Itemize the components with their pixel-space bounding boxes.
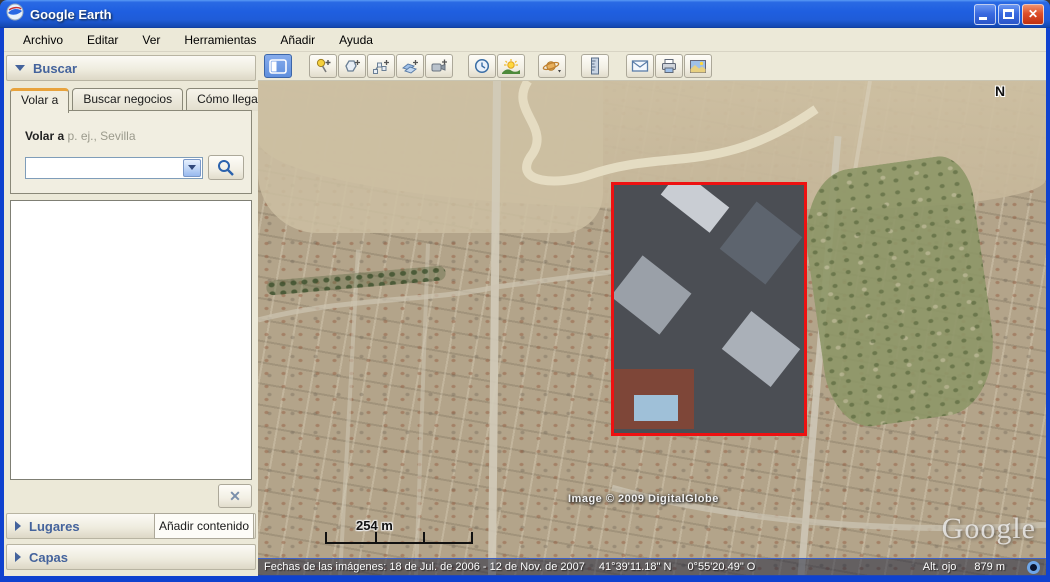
add-content-button[interactable]: Añadir contenido (154, 513, 254, 539)
minimize-button[interactable] (974, 4, 996, 25)
add-image-overlay-button[interactable] (396, 54, 424, 78)
search-input[interactable] (28, 159, 180, 177)
search-tabs: Volar a Buscar negocios Cómo llegar (10, 88, 276, 111)
eye-altitude-value: 879 m (974, 561, 1005, 573)
sunlight-button[interactable] (497, 54, 525, 78)
google-earth-window: Google Earth ✕ Archivo Editar Ver Herram… (0, 0, 1050, 582)
save-image-button[interactable] (684, 54, 712, 78)
chevron-down-icon (188, 165, 196, 170)
polygon-icon (343, 58, 361, 74)
layers-panel-header[interactable]: Capas (6, 544, 256, 570)
image-overlay-icon (401, 58, 419, 74)
historical-imagery-button[interactable] (468, 54, 496, 78)
flyto-tab-panel: Volar a p. ej., Sevilla (10, 110, 252, 194)
print-button[interactable] (655, 54, 683, 78)
search-button[interactable] (208, 155, 244, 180)
ruler-button[interactable] (581, 54, 609, 78)
flyto-hint: p. ej., Sevilla (67, 129, 135, 143)
maximize-icon (1003, 9, 1014, 19)
expand-triangle-icon (15, 552, 21, 562)
google-watermark: Google (942, 512, 1036, 546)
clear-search-button[interactable]: ✕ (218, 484, 252, 508)
menu-bar: Archivo Editar Ver Herramientas Añadir A… (4, 28, 1046, 52)
menu-ayuda[interactable]: Ayuda (328, 30, 384, 50)
menu-herramientas[interactable]: Herramientas (173, 30, 267, 50)
printer-icon (660, 58, 678, 74)
record-tour-button[interactable] (425, 54, 453, 78)
search-panel-header[interactable]: Buscar (6, 55, 256, 81)
path-icon (372, 58, 390, 74)
tab-buscar-negocios[interactable]: Buscar negocios (72, 88, 183, 111)
flyto-label: Volar a (25, 129, 64, 143)
add-path-button[interactable] (367, 54, 395, 78)
imagery-dates: Fechas de las imágenes: 18 de Jul. de 20… (264, 561, 585, 573)
scale-tick (375, 532, 377, 544)
sidebar: Buscar Volar a Buscar negocios Cómo lleg… (4, 52, 258, 576)
camcorder-icon (430, 58, 448, 74)
email-button[interactable] (626, 54, 654, 78)
placemark-icon (314, 58, 332, 74)
ruler-icon (589, 57, 601, 75)
close-icon: ✕ (1023, 7, 1043, 21)
flyto-combobox[interactable] (25, 157, 203, 179)
imagery-copyright: Image © 2009 DigitalGlobe (568, 493, 719, 505)
minimize-icon (979, 17, 987, 20)
expand-triangle-icon (15, 521, 21, 531)
saturn-icon (542, 58, 562, 74)
switch-planet-button[interactable] (538, 54, 566, 78)
tab-volar-a[interactable]: Volar a (10, 88, 69, 113)
search-panel-title: Buscar (33, 61, 77, 76)
places-panel-title: Lugares (29, 519, 80, 534)
latitude-readout: 41°39'11.18" N (599, 561, 672, 573)
toolbar (258, 52, 1046, 81)
menu-anadir[interactable]: Añadir (269, 30, 326, 50)
image-icon (689, 59, 707, 74)
window-body: Buscar Volar a Buscar negocios Cómo lleg… (4, 52, 1046, 576)
menu-ver[interactable]: Ver (131, 30, 171, 50)
add-placemark-button[interactable] (309, 54, 337, 78)
scale-bar: 254 m (320, 518, 480, 546)
menu-editar[interactable]: Editar (76, 30, 129, 50)
selection-rectangle[interactable] (611, 182, 807, 436)
layers-panel-title: Capas (29, 550, 68, 565)
close-button[interactable]: ✕ (1022, 4, 1044, 25)
scale-tick (325, 532, 327, 544)
north-indicator: N (995, 83, 1005, 99)
maximize-button[interactable] (998, 4, 1020, 25)
streaming-indicator-icon (1027, 561, 1040, 574)
toggle-sidebar-button[interactable] (264, 54, 292, 78)
window-title: Google Earth (30, 7, 112, 22)
sidebar-icon (269, 59, 287, 74)
search-icon (216, 159, 236, 177)
add-polygon-button[interactable] (338, 54, 366, 78)
combo-dropdown-button[interactable] (183, 159, 201, 177)
menu-archivo[interactable]: Archivo (12, 30, 74, 50)
sun-icon (501, 58, 521, 74)
main-area: N 254 m Image © 2009 DigitalGlobe Google… (258, 52, 1046, 576)
scale-tick (471, 532, 473, 544)
google-earth-logo-icon (6, 3, 24, 26)
status-bar: Fechas de las imágenes: 18 de Jul. de 20… (258, 558, 1046, 576)
eye-altitude-label: Alt. ojo (923, 561, 957, 573)
scale-line (325, 542, 473, 544)
clock-icon (473, 58, 491, 74)
envelope-icon (631, 59, 649, 73)
collapse-triangle-icon (15, 65, 25, 71)
clear-icon: ✕ (229, 488, 241, 505)
scale-label: 254 m (356, 518, 393, 533)
map-viewport[interactable]: N 254 m Image © 2009 DigitalGlobe Google… (258, 81, 1046, 576)
scale-tick (423, 532, 425, 544)
longitude-readout: 0°55'20.49" O (687, 561, 755, 573)
search-results-list[interactable] (10, 200, 252, 480)
title-bar[interactable]: Google Earth ✕ (0, 0, 1050, 28)
